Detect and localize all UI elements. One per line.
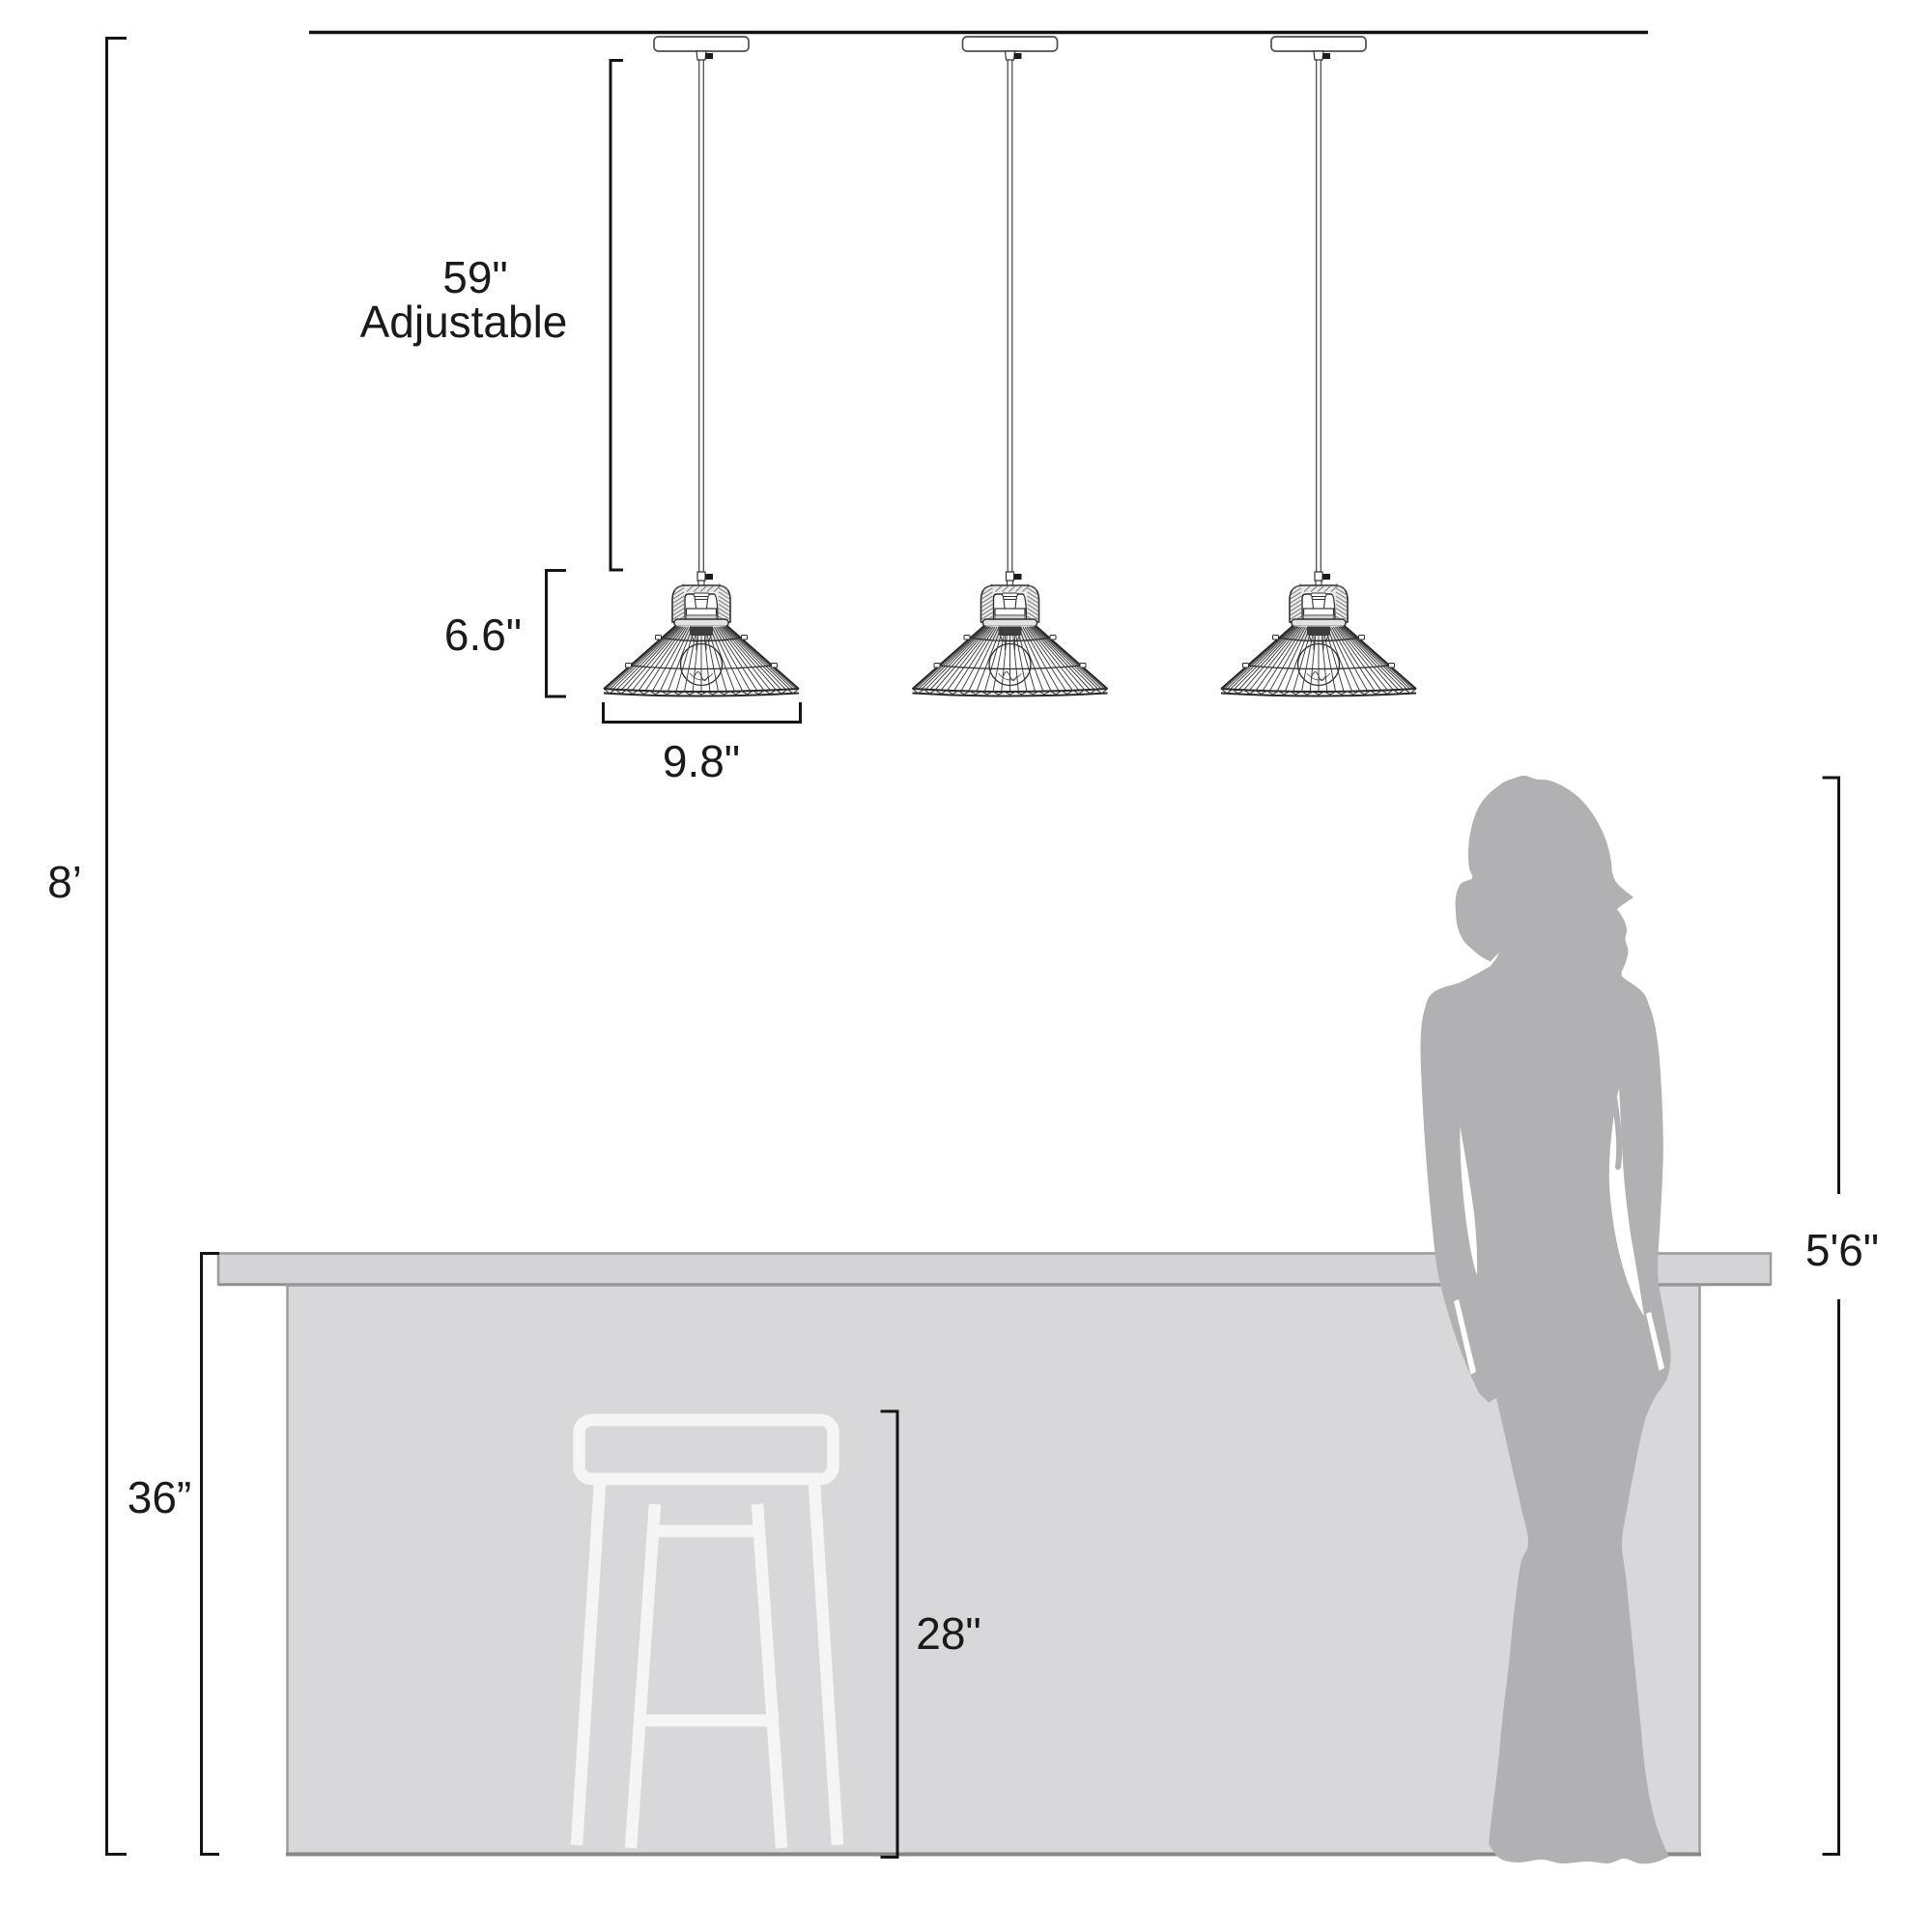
svg-text:9.8": 9.8" <box>663 736 740 786</box>
svg-text:36”: 36” <box>128 1472 191 1522</box>
svg-text:59": 59" <box>442 252 508 302</box>
svg-text:8’: 8’ <box>47 857 82 907</box>
svg-text:28": 28" <box>916 1608 981 1659</box>
svg-text:6.6": 6.6" <box>444 610 522 660</box>
svg-text:5'6": 5'6" <box>1805 1225 1879 1275</box>
svg-text:Adjustable: Adjustable <box>360 297 568 347</box>
